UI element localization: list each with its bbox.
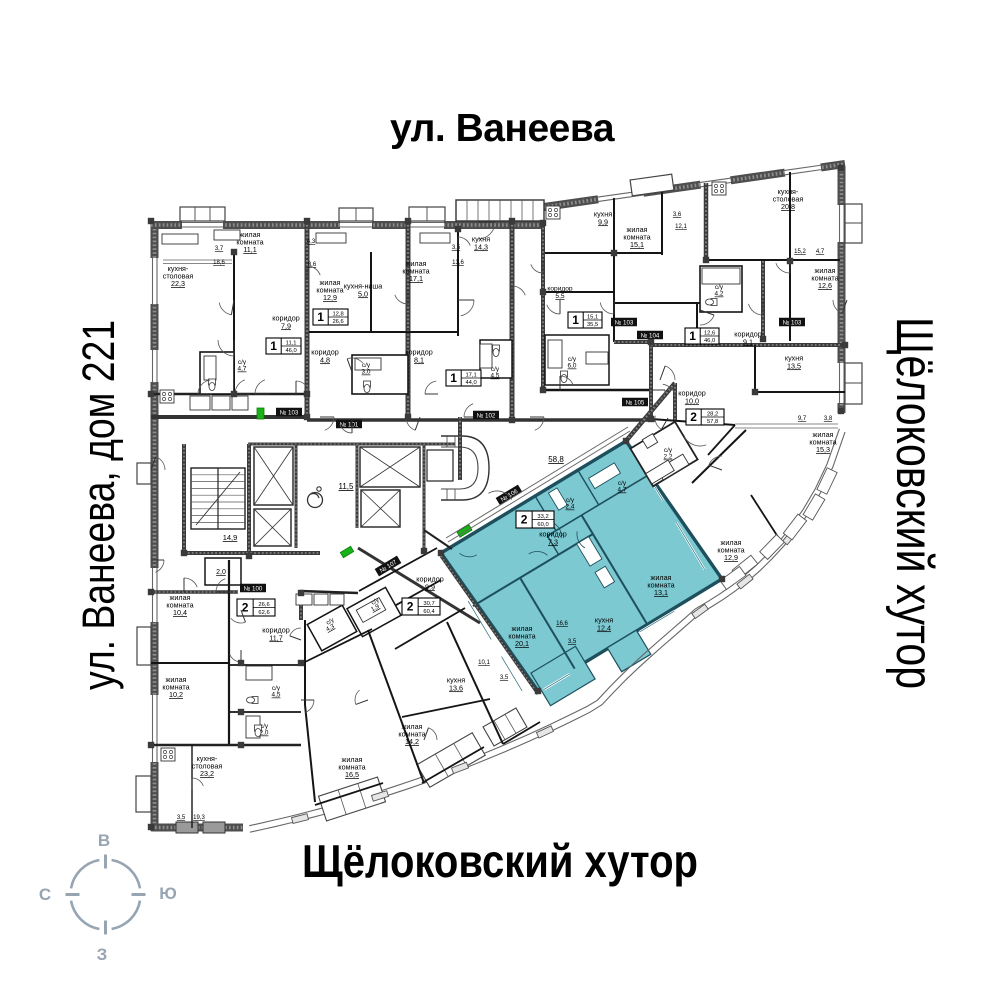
svg-text:коридор: коридор: [547, 286, 572, 293]
svg-text:3,0: 3,0: [362, 369, 371, 376]
svg-text:17,1: 17,1: [465, 372, 476, 378]
svg-text:14,3: 14,3: [474, 242, 488, 251]
svg-text:46,0: 46,0: [704, 338, 715, 344]
svg-text:13,1: 13,1: [654, 588, 668, 597]
svg-text:26,6: 26,6: [258, 602, 269, 608]
svg-text:3,5: 3,5: [452, 245, 461, 251]
svg-text:6,0: 6,0: [568, 363, 577, 370]
svg-text:7,9: 7,9: [281, 321, 291, 330]
svg-text:13,5: 13,5: [787, 361, 801, 370]
svg-text:3,7: 3,7: [215, 246, 224, 252]
svg-text:3,6: 3,6: [673, 212, 682, 218]
svg-text:18,6: 18,6: [213, 260, 225, 266]
svg-text:4,3: 4,3: [307, 239, 316, 245]
svg-text:14,9: 14,9: [223, 533, 238, 542]
svg-text:58,8: 58,8: [548, 455, 564, 464]
svg-text:15,1: 15,1: [630, 240, 644, 249]
svg-text:35,5: 35,5: [587, 322, 598, 328]
svg-text:9,1: 9,1: [743, 337, 753, 346]
svg-text:1: 1: [450, 371, 457, 385]
svg-text:2: 2: [242, 601, 249, 615]
svg-text:4,2: 4,2: [715, 291, 724, 298]
svg-text:44,0: 44,0: [465, 380, 476, 386]
svg-text:11,7: 11,7: [269, 633, 282, 642]
svg-text:5,0: 5,0: [358, 289, 368, 298]
svg-text:З: З: [97, 945, 108, 964]
svg-text:4,5: 4,5: [272, 692, 281, 699]
svg-text:30,7: 30,7: [423, 601, 434, 607]
svg-text:15,2: 15,2: [794, 249, 806, 255]
svg-text:3,8: 3,8: [824, 416, 833, 422]
svg-text:20,1: 20,1: [515, 639, 529, 648]
svg-text:№ 101: № 101: [340, 421, 359, 428]
svg-text:10,0: 10,0: [685, 396, 699, 405]
svg-text:С: С: [39, 885, 51, 904]
svg-text:16,5: 16,5: [345, 770, 359, 779]
svg-text:2,2: 2,2: [664, 454, 673, 461]
svg-text:13,6: 13,6: [452, 260, 464, 266]
svg-text:В: В: [98, 831, 110, 850]
svg-text:4,7: 4,7: [238, 366, 247, 373]
svg-text:2: 2: [521, 513, 528, 527]
svg-text:28,2: 28,2: [707, 411, 718, 417]
svg-text:9,9: 9,9: [425, 582, 435, 591]
svg-text:23,2: 23,2: [200, 769, 214, 778]
svg-text:60,0: 60,0: [537, 522, 548, 528]
svg-text:26,6: 26,6: [332, 319, 343, 325]
svg-text:2: 2: [690, 410, 697, 424]
svg-text:12,6: 12,6: [704, 330, 715, 336]
svg-text:15,3: 15,3: [816, 445, 830, 454]
svg-text:4,7: 4,7: [618, 487, 627, 494]
svg-text:22,3: 22,3: [171, 279, 185, 288]
svg-text:46,0: 46,0: [285, 348, 296, 354]
svg-text:8,1: 8,1: [414, 355, 424, 364]
svg-text:4,8: 4,8: [320, 355, 330, 364]
svg-text:1: 1: [270, 339, 277, 353]
svg-text:Щёлоковский хутор: Щёлоковский хутор: [302, 836, 698, 887]
svg-text:1: 1: [572, 313, 579, 327]
svg-text:1: 1: [317, 310, 324, 324]
svg-text:2,0: 2,0: [216, 569, 226, 576]
svg-text:№ 103: № 103: [783, 319, 802, 326]
svg-text:№ 104: № 104: [641, 332, 660, 339]
svg-text:9,7: 9,7: [798, 416, 807, 422]
svg-text:16,6: 16,6: [556, 621, 568, 627]
svg-text:12,8: 12,8: [332, 311, 343, 317]
svg-text:12,4: 12,4: [597, 623, 611, 632]
svg-text:№ 105: № 105: [626, 399, 645, 406]
svg-text:12,6: 12,6: [818, 281, 832, 290]
svg-text:№ 103: № 103: [615, 319, 634, 326]
svg-text:5,5: 5,5: [555, 293, 564, 300]
svg-text:7,3: 7,3: [548, 537, 558, 546]
svg-text:11,5: 11,5: [339, 482, 355, 491]
svg-text:17,1: 17,1: [409, 274, 423, 283]
svg-text:12,1: 12,1: [675, 224, 687, 230]
svg-text:33,2: 33,2: [537, 514, 548, 520]
svg-text:3,5: 3,5: [500, 675, 509, 681]
svg-text:3,5: 3,5: [568, 639, 577, 645]
svg-text:19,3: 19,3: [193, 815, 205, 821]
svg-text:10,1: 10,1: [478, 660, 490, 666]
svg-text:Ю: Ю: [159, 884, 177, 903]
svg-text:14,2: 14,2: [405, 737, 419, 746]
svg-text:ул. Ванеева, дом 221: ул. Ванеева, дом 221: [74, 320, 124, 690]
svg-text:9,9: 9,9: [598, 217, 608, 226]
svg-text:11,1: 11,1: [243, 245, 256, 254]
svg-text:1: 1: [689, 329, 696, 343]
svg-text:2: 2: [407, 600, 414, 614]
svg-text:Щёлоковский хутор: Щёлоковский хутор: [886, 317, 944, 689]
svg-text:10,4: 10,4: [173, 608, 187, 617]
svg-text:4,7: 4,7: [816, 249, 825, 255]
svg-text:№ 103: № 103: [280, 409, 299, 416]
svg-text:ул. Ванеева: ул. Ванеева: [390, 107, 615, 150]
svg-text:10,2: 10,2: [169, 690, 183, 699]
svg-text:2,4: 2,4: [566, 504, 575, 511]
svg-text:13,6: 13,6: [449, 683, 463, 692]
svg-text:№ 102: № 102: [477, 412, 496, 419]
svg-text:57,8: 57,8: [707, 419, 718, 425]
svg-text:62,6: 62,6: [258, 610, 269, 616]
svg-text:12,9: 12,9: [724, 553, 738, 562]
svg-text:№ 100: № 100: [244, 585, 263, 592]
svg-text:60,4: 60,4: [423, 609, 435, 615]
svg-text:20,8: 20,8: [781, 202, 795, 211]
svg-text:12,9: 12,9: [323, 293, 337, 302]
svg-text:3,5: 3,5: [177, 815, 186, 821]
svg-text:11,1: 11,1: [286, 340, 297, 346]
svg-text:4,5: 4,5: [491, 373, 500, 380]
svg-text:15,1: 15,1: [587, 314, 598, 320]
